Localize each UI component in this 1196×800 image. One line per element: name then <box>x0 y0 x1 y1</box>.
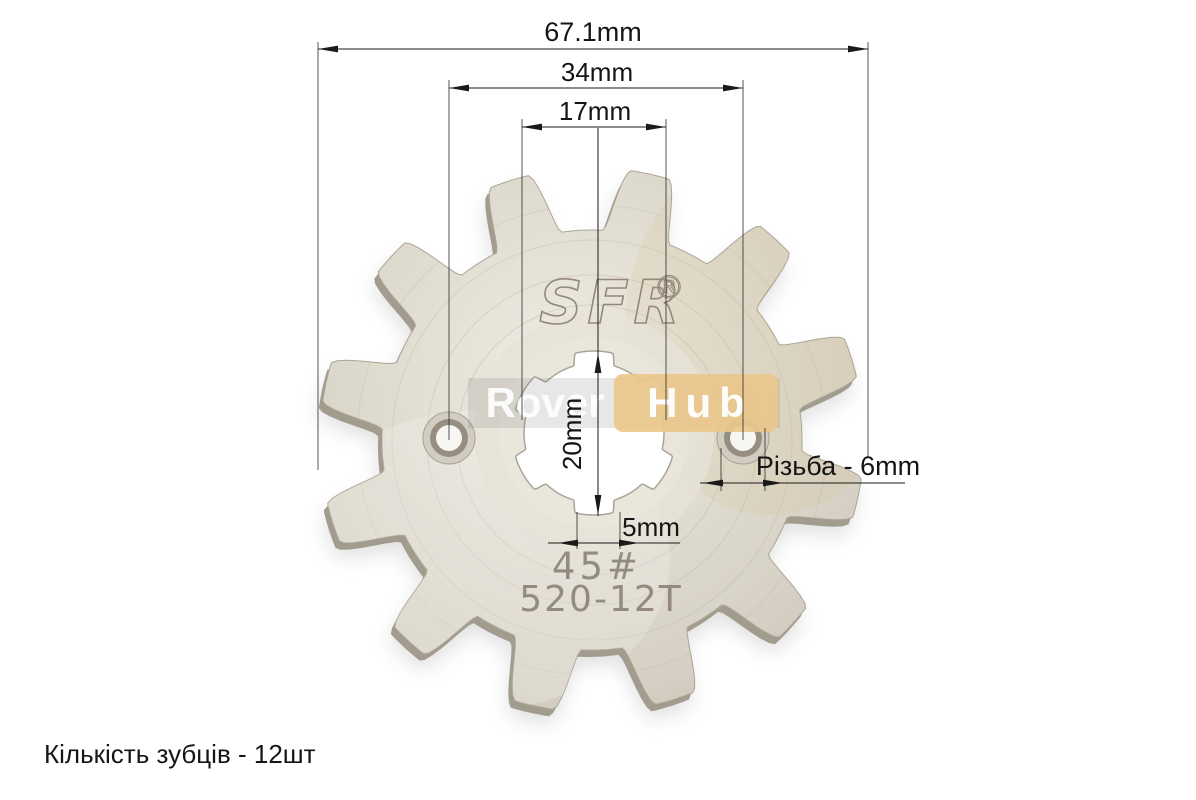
watermark-text-hub: Hub <box>647 379 753 426</box>
dim-label-groove-width: 5mm <box>622 512 680 542</box>
sprocket: SFR ® 45# 520-12T <box>290 145 915 716</box>
dim-label-outer-diameter: 67.1mm <box>544 17 642 47</box>
dim-label-thread: Різьба - 6mm <box>756 451 920 481</box>
watermark: Rover Hub <box>468 374 780 432</box>
dim-label-hole-spacing: 34mm <box>561 57 633 87</box>
dimension-arrowhead <box>318 46 338 53</box>
product-photo: SFR ® 45# 520-12T Rover Hub 67.1mm 34mm <box>0 0 1196 800</box>
dimension-arrowhead <box>646 124 666 131</box>
dimension-arrowhead <box>848 46 868 53</box>
teeth-count-caption: Кількість зубців - 12шт <box>44 739 316 770</box>
registered-mark-engraving: ® <box>654 270 685 306</box>
dim-label-spline-outer: 20mm <box>557 398 587 470</box>
dimension-arrowhead <box>449 85 469 92</box>
dimension-arrowhead <box>522 124 542 131</box>
dimension-arrowhead <box>723 85 743 92</box>
sprocket-dimension-drawing: SFR ® 45# 520-12T Rover Hub 67.1mm 34mm <box>0 0 1196 800</box>
model-engraving: 520-12T <box>519 579 683 620</box>
dim-label-spline-inner: 17mm <box>559 96 631 126</box>
